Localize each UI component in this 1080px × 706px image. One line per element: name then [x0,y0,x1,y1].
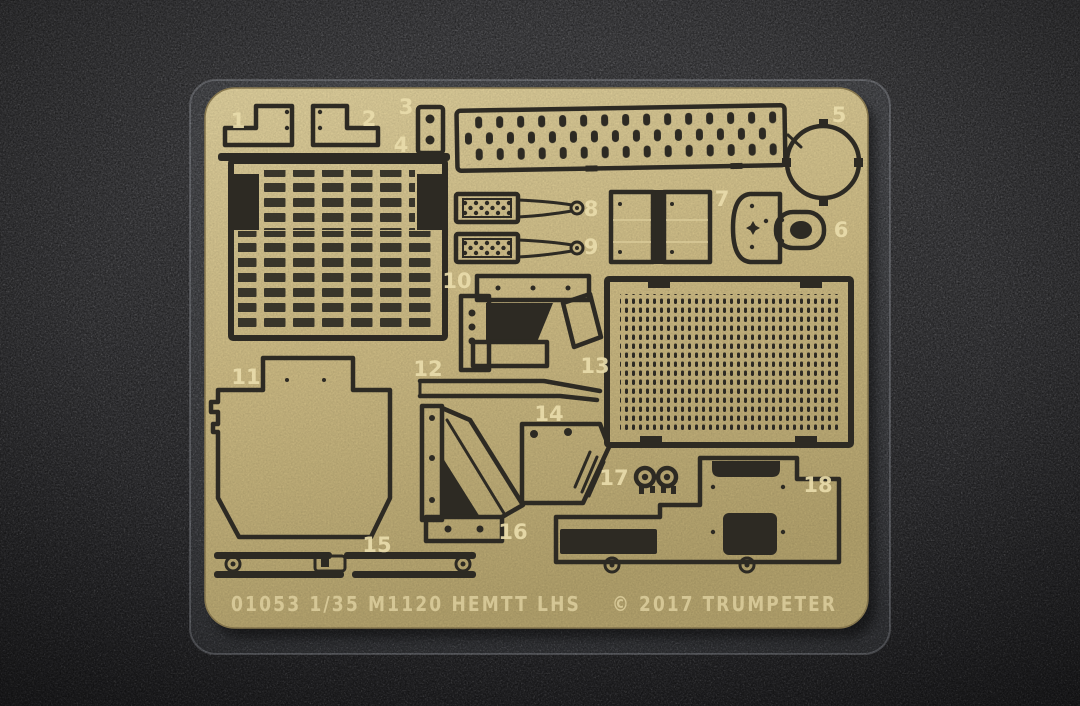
part-label-5: 5 [832,103,847,127]
part-label-10: 10 [442,269,471,293]
part-label-8: 8 [584,197,599,221]
mesh-texture [620,294,838,430]
pe-fret: 1 2 3 4 5 6 7 8 9 10 11 12 13 14 15 16 1… [205,88,868,628]
fret-footer: 01053 1/35 M1120 HEMTT LHS © 2017 TRUMPE… [231,592,837,616]
part-label-12: 12 [413,357,442,381]
vent-slots [465,111,778,164]
part-label-9: 9 [584,235,599,259]
part-label-7: 7 [715,187,730,211]
part-label-6: 6 [834,218,849,242]
part-label-18: 18 [803,473,832,497]
photo-canvas: 1 2 3 4 5 6 7 8 9 10 11 12 13 14 15 16 1… [0,0,1080,706]
part-label-13: 13 [580,354,609,378]
part-label-3: 3 [399,95,414,119]
grille-cells-bottom [238,231,438,332]
grille-cells-top [261,170,415,230]
part-label-4: 4 [394,133,409,157]
part-13-mesh-panel [607,276,851,448]
part-label-15: 15 [362,533,391,557]
part-label-1: 1 [231,109,246,133]
photo-of-pe-fret: 1 2 3 4 5 6 7 8 9 10 11 12 13 14 15 16 1… [0,0,1080,706]
part-label-2: 2 [362,107,377,131]
footer-kit-text: 01053 1/35 M1120 HEMTT LHS [231,592,581,616]
footer-copyright-text: © 2017 TRUMPETER [612,592,837,616]
part-label-11: 11 [231,365,260,389]
part-label-14: 14 [534,402,563,426]
part-label-16: 16 [498,520,527,544]
part-label-17: 17 [599,466,628,490]
